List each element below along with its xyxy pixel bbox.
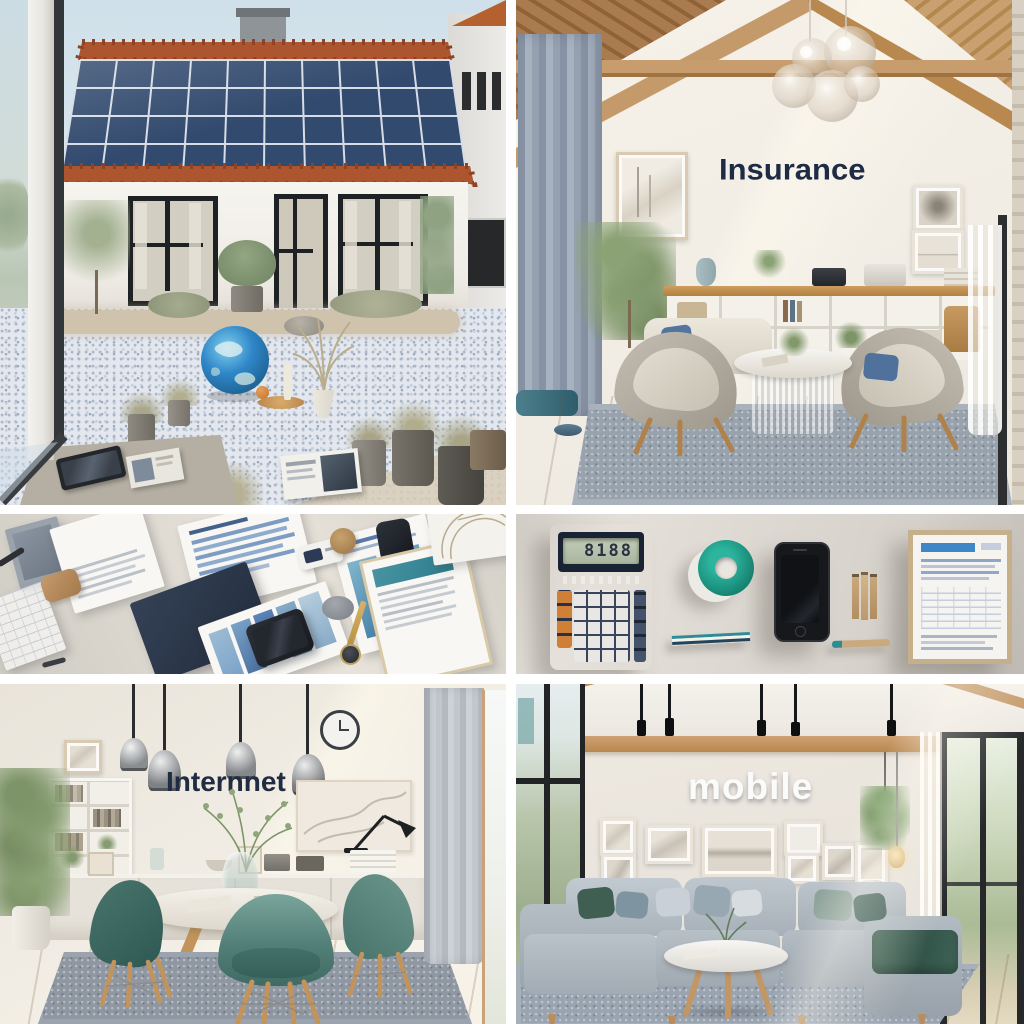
- pillow: [813, 889, 853, 922]
- plant-sprig: [95, 833, 119, 849]
- counter-glass: [150, 848, 164, 870]
- calculator-lcd: 8188: [563, 538, 639, 564]
- doc-table: [921, 587, 1001, 629]
- blue-pillow: [863, 352, 900, 381]
- candle: [284, 364, 291, 400]
- books: [93, 809, 121, 827]
- calculator-dark-keys: [634, 590, 646, 662]
- shelf-vase-plant: [752, 250, 786, 288]
- gallery-frame: [784, 821, 823, 856]
- doc-blue-header: [921, 543, 975, 552]
- teal-ring: [698, 540, 754, 596]
- pillow: [577, 886, 616, 920]
- table-plant: [774, 326, 814, 356]
- topiary-bush: [218, 240, 276, 286]
- tall-grass: [292, 312, 356, 398]
- shelf-books: [783, 300, 788, 322]
- calculator: 8188: [550, 524, 652, 670]
- pendant-bulb-cord: [896, 752, 898, 848]
- hanging-plant: [860, 786, 910, 850]
- window-frame-bar: [54, 0, 64, 440]
- neighbour-window: [466, 218, 506, 288]
- wall-art-frame: [913, 185, 963, 231]
- table-top: [664, 940, 788, 972]
- shelf-books: [790, 300, 795, 322]
- wall-clock: [320, 710, 360, 750]
- magazine: [280, 448, 362, 500]
- panel-calculator-flatlay: 8188: [516, 514, 1024, 674]
- pendant-cord: [239, 684, 242, 746]
- curtain-right: [424, 688, 484, 964]
- tree-trunk: [95, 270, 98, 314]
- sofa-chaise-left: [524, 934, 658, 994]
- panel-solar-home: [0, 0, 506, 505]
- phone-home-button: [795, 626, 806, 637]
- glass-reflection: [518, 698, 534, 744]
- stone-wall-strip: [1012, 0, 1024, 505]
- tall-plant: [0, 768, 70, 916]
- armchair-right: [834, 328, 966, 444]
- gallery-frame: [600, 818, 636, 856]
- bush: [148, 292, 210, 318]
- coffee-table: [664, 912, 788, 1022]
- calculator-orange-keys: [557, 590, 572, 648]
- coffee-table-glass: [734, 348, 852, 444]
- facade-window-left: [128, 196, 218, 306]
- panel-insurance-room: Insurance: [516, 0, 1024, 505]
- wall-vine: [420, 196, 454, 294]
- wall-text-insurance: Insurance: [719, 153, 865, 187]
- pendant-lamp: [120, 738, 148, 771]
- pot: [168, 400, 190, 426]
- counter-box: [296, 856, 324, 871]
- cord-fitting: [637, 720, 646, 736]
- blue-dish: [554, 424, 582, 436]
- window-mullion-pillar: [28, 0, 54, 460]
- phone-speaker: [793, 549, 807, 551]
- calculator-keypad: [574, 590, 630, 662]
- gallery-frame: [702, 825, 777, 877]
- counter-frame: [88, 852, 114, 876]
- pendant-cord: [163, 684, 166, 754]
- pen: [42, 657, 66, 668]
- photo-collage: Insurance: [0, 0, 1024, 1024]
- cord-fitting: [887, 720, 896, 736]
- ceiling: [516, 684, 1024, 736]
- rolled-sketch: [427, 514, 506, 566]
- pebble: [322, 596, 354, 620]
- pendant-cord: [306, 684, 309, 758]
- framed-document: [908, 530, 1012, 664]
- gallery-frame: [645, 825, 693, 864]
- panel-mobile-room: mobile: [516, 684, 1024, 1024]
- shelf-machine: [864, 264, 906, 286]
- teal-chair-right: [336, 874, 420, 996]
- calculator-brand-strip: [563, 576, 639, 584]
- facade-door: [274, 194, 328, 324]
- sofa-leg: [796, 1016, 808, 1024]
- sheer-curtain: [968, 225, 1002, 435]
- teal-chair-center: [218, 894, 338, 1024]
- pillow: [615, 891, 649, 920]
- pot: [392, 430, 434, 486]
- paper-stack: [350, 850, 396, 872]
- window-sill: [0, 420, 90, 505]
- green-throw: [872, 930, 958, 974]
- pendant-cord: [132, 684, 135, 742]
- cork-disc: [330, 528, 356, 554]
- glass-pendant-lights: [754, 0, 894, 140]
- window-right: [482, 690, 506, 1024]
- cord-fitting: [665, 718, 674, 736]
- smartphone: [774, 542, 830, 642]
- plant-pot: [12, 906, 50, 950]
- pillow: [852, 892, 887, 923]
- shelf-jar: [696, 258, 716, 286]
- topiary-pot: [231, 286, 263, 312]
- panel-documents-flatlay: [0, 514, 506, 674]
- teal-chair-left: [88, 880, 174, 1006]
- armchair-left: [616, 332, 746, 450]
- pendant-bulb: [888, 846, 905, 868]
- panel-internet-room: Internnet: [0, 684, 506, 1024]
- shelf-radio: [812, 268, 846, 286]
- orange-ball: [256, 386, 269, 399]
- round-button: [340, 644, 361, 665]
- pot-bronze: [470, 430, 506, 470]
- shelf-books: [797, 301, 802, 322]
- cord-fitting: [791, 722, 800, 736]
- solar-roof: [0, 0, 506, 200]
- sample-sticks: [852, 572, 880, 618]
- cord-fitting: [757, 720, 766, 736]
- wall-text-mobile: mobile: [688, 766, 813, 808]
- desk-lamp: [338, 792, 418, 856]
- sofa-leg: [546, 1014, 558, 1024]
